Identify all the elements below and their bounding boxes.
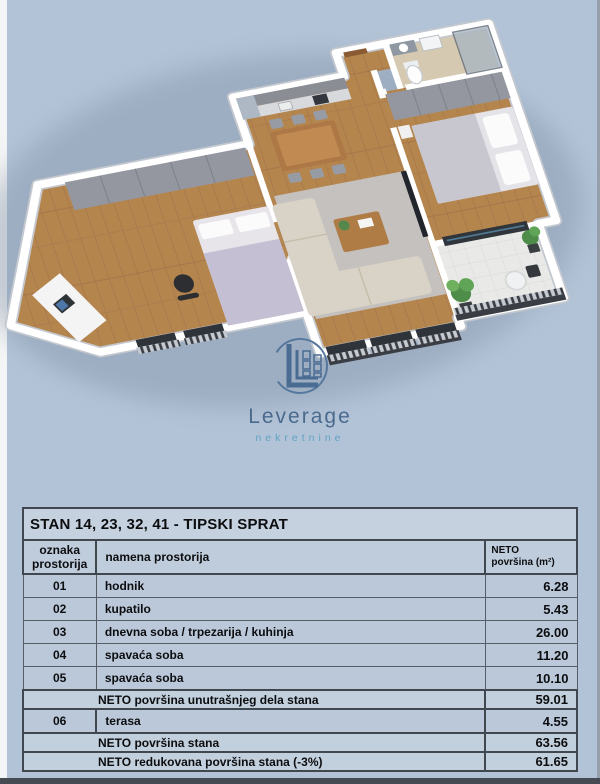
terrace-code: 06 (23, 709, 96, 733)
logo-text: Leverage (0, 405, 600, 429)
terrace-name: terasa (96, 709, 485, 733)
room-name: kupatilo (96, 598, 485, 621)
header-oznaka-line1: oznaka (28, 543, 91, 557)
summary-total-row: NETO površina stana 63.56 (23, 733, 577, 752)
summary-inner-area: 59.01 (485, 690, 577, 709)
header-oznaka: oznaka prostorija (23, 540, 96, 574)
header-neto-line2: površina (m²) (491, 557, 572, 569)
header-neto-line1: NETO (491, 545, 572, 557)
summary-reduced-area: 61.65 (485, 752, 577, 771)
room-name: dnevna soba / trpezarija / kuhinja (96, 621, 485, 644)
table-row: 01hodnik6.28 (23, 574, 577, 598)
terrace-area: 4.55 (485, 709, 577, 733)
header-neto: NETO površina (m²) (485, 540, 577, 574)
table-row: 04spavaća soba11.20 (23, 644, 577, 667)
room-name: hodnik (96, 574, 485, 598)
summary-inner-row: NETO površina unutrašnjeg dela stana 59.… (23, 690, 577, 709)
summary-reduced-row: NETO redukovana površina stana (-3%) 61.… (23, 752, 577, 771)
area-table: STAN 14, 23, 32, 41 - TIPSKI SPRAT oznak… (22, 507, 578, 772)
room-code: 04 (23, 644, 96, 667)
summary-total-area: 63.56 (485, 733, 577, 752)
logo-subtext: nekretnine (0, 432, 600, 444)
room-code: 03 (23, 621, 96, 644)
table-row: 05spavaća soba10.10 (23, 667, 577, 691)
table-row: 02kupatilo5.43 (23, 598, 577, 621)
logo-mark-icon (264, 336, 336, 398)
room-code: 01 (23, 574, 96, 598)
room-name: spavaća soba (96, 667, 485, 691)
header-namena: namena prostorija (96, 540, 485, 574)
room-area: 6.28 (485, 574, 577, 598)
room-area: 5.43 (485, 598, 577, 621)
room-code: 02 (23, 598, 96, 621)
room-area: 26.00 (485, 621, 577, 644)
table-header-row: oznaka prostorija namena prostorija NETO… (23, 540, 577, 574)
summary-reduced-label: NETO redukovana površina stana (-3%) (23, 752, 485, 771)
room-area: 10.10 (485, 667, 577, 691)
summary-total-label: NETO površina stana (23, 733, 485, 752)
table-row: 03dnevna soba / trpezarija / kuhinja26.0… (23, 621, 577, 644)
room-code: 05 (23, 667, 96, 691)
summary-inner-label: NETO površina unutrašnjeg dela stana (23, 690, 485, 709)
page-edge-bottom (0, 778, 600, 784)
logo: Leverage nekretnine (0, 336, 600, 444)
table-title-row: STAN 14, 23, 32, 41 - TIPSKI SPRAT (23, 508, 577, 540)
terrace-row: 06 terasa 4.55 (23, 709, 577, 733)
room-name: spavaća soba (96, 644, 485, 667)
table-title: STAN 14, 23, 32, 41 - TIPSKI SPRAT (23, 508, 577, 540)
room-area: 11.20 (485, 644, 577, 667)
header-oznaka-line2: prostorija (28, 557, 91, 571)
